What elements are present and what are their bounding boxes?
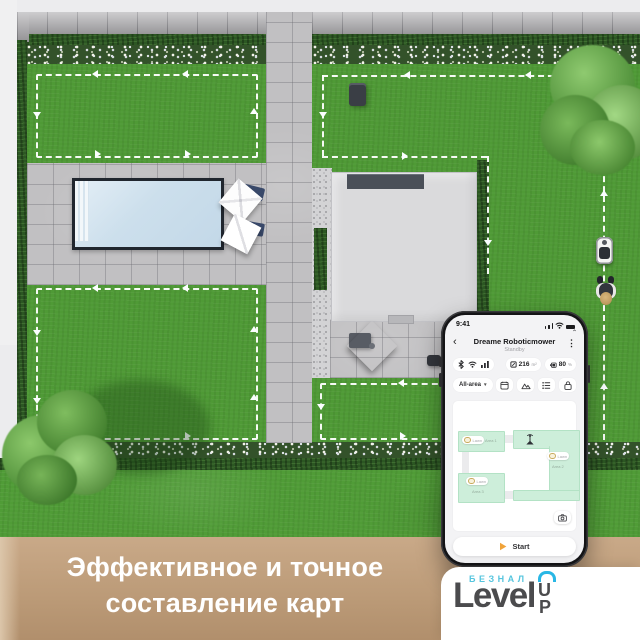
task-list-button[interactable]: [538, 378, 555, 392]
pool: [72, 178, 224, 250]
path-arrow: [404, 71, 410, 79]
mow-zone-boundary-house-edge: [487, 156, 489, 274]
bush-strip: [314, 228, 327, 290]
mowed-area-unit: m²: [532, 362, 537, 367]
tree: [2, 385, 127, 510]
path-arrow: [484, 240, 492, 246]
garden-wall-top: [17, 12, 266, 36]
chevron-down-icon: ▾: [484, 382, 487, 388]
app-screen: 9:41 ⌃ ‹ Dreame Roboticmower Standby ⋮: [445, 315, 584, 563]
status-bar-icons: [545, 322, 576, 329]
wifi-icon: [468, 361, 477, 368]
path-arrow: [185, 150, 191, 158]
path-arrow: [398, 379, 404, 387]
lock-icon: [564, 381, 572, 390]
chevron-up-icon[interactable]: ⌃: [572, 329, 577, 336]
device-status: Standby: [445, 347, 584, 353]
mow-zone-boundary-top-left: [36, 74, 258, 158]
toolbar: [496, 378, 576, 392]
tree: [540, 45, 640, 180]
zone-dot-icon: [468, 478, 475, 485]
person-head: [600, 292, 612, 305]
mower-front-band: [599, 247, 610, 259]
mow-zones-icon: [521, 381, 531, 390]
path-arrow: [92, 284, 98, 292]
phone-side-button: [439, 357, 442, 367]
mowed-area-chip[interactable]: 216 m²: [506, 358, 541, 371]
lawn-map[interactable]: Lawn Area 1 Lawn Area 2 Lawn Area 3: [452, 400, 577, 532]
lock-button[interactable]: [559, 378, 576, 392]
zone-badge-label: Lawn: [477, 479, 487, 484]
play-icon: [499, 542, 507, 551]
path-arrow: [182, 70, 188, 78]
garden-wall-top: [312, 12, 640, 36]
path-arrow: [402, 152, 408, 160]
zone-badge[interactable]: Lawn: [466, 477, 488, 485]
remap-camera-button[interactable]: [554, 511, 571, 524]
mow-zone-boundary-bottom-right: [320, 383, 448, 440]
wifi-icon: [555, 322, 564, 329]
zone-label: Area 3: [472, 489, 484, 494]
house-entry-step: [388, 315, 414, 324]
signal-bars-icon: [481, 361, 489, 368]
mowed-area-value: 216: [519, 361, 530, 368]
status-bar-time: 9:41: [456, 321, 470, 328]
path-arrow: [525, 71, 531, 79]
path-arrow: [33, 330, 41, 336]
cell-signal-icon: [545, 326, 547, 329]
banner-caption-line1: Эффективное и точное: [15, 549, 435, 585]
brand-logo-card: БЕЗНАЛ Level U P: [441, 567, 640, 640]
path-arrow: [400, 432, 406, 440]
connectivity-pill[interactable]: [453, 358, 494, 371]
trash-bin: [349, 83, 366, 106]
area-selector-label: All-area: [459, 382, 481, 388]
path-arrow: [319, 112, 327, 118]
map-corridor: [462, 449, 469, 474]
battery-chip[interactable]: 80 %: [545, 358, 576, 371]
base-station-icon: [525, 433, 535, 445]
start-button[interactable]: Start: [453, 537, 576, 556]
schedule-icon: [500, 381, 509, 390]
logo-wordmark: Level: [453, 576, 535, 616]
path-arrow: [600, 383, 608, 389]
battery-value: 80: [559, 361, 566, 368]
zone-badge-label: Lawn: [473, 438, 483, 443]
logo-up-u: U: [538, 583, 551, 598]
person: [595, 276, 617, 310]
zone-badge[interactable]: Lawn: [547, 452, 569, 460]
battery-unit: %: [568, 362, 572, 367]
umbrella-pole: [368, 342, 376, 350]
phone-side-button: [439, 373, 442, 387]
start-button-label: Start: [512, 542, 529, 551]
cell-signal-icon: [552, 323, 554, 329]
more-menu-button[interactable]: ⋮: [567, 338, 576, 349]
path-arrow: [92, 70, 98, 78]
flower-bed-top: [26, 45, 266, 64]
left-margin: [0, 0, 17, 345]
pool-steps: [75, 181, 89, 241]
garden-wall-left: [17, 12, 29, 42]
area-icon: [510, 361, 517, 368]
schedule-button[interactable]: [496, 378, 513, 392]
robot-mower: [596, 237, 613, 264]
zone-dot-icon: [549, 453, 556, 460]
zone-badge[interactable]: Lawn: [462, 436, 484, 444]
remap-camera-icon: [558, 514, 567, 522]
mow-zones-button[interactable]: [517, 378, 534, 392]
path-arrow: [182, 284, 188, 292]
task-list-icon: [542, 381, 551, 390]
banner-caption: Эффективное и точное составление карт: [15, 549, 435, 621]
mower-sensor: [602, 240, 607, 245]
area-selector-dropdown[interactable]: All-area ▾: [453, 378, 493, 392]
logo-up-p: P: [539, 600, 551, 615]
house-roof-dark-section: [347, 174, 424, 189]
zone-dot-icon: [464, 437, 471, 444]
zone-label: Area 2: [552, 464, 564, 469]
phone-mockup: 9:41 ⌃ ‹ Dreame Roboticmower Standby ⋮: [441, 311, 588, 567]
page-title: Dreame Roboticmower: [445, 337, 584, 346]
path-arrow: [317, 404, 325, 410]
path-arrow: [33, 112, 41, 118]
path-arrow: [600, 190, 608, 196]
promo-image: Эффективное и точное составление карт 9:…: [0, 0, 640, 640]
path-arrow: [250, 108, 258, 114]
map-zone-2-bottom[interactable]: [513, 490, 580, 501]
zone-label: Area 1: [485, 438, 497, 443]
zone-badge-label: Lawn: [558, 454, 568, 459]
device-metrics: 216 m² 80 %: [506, 358, 576, 371]
paving-center-path: [266, 12, 312, 443]
battery-icon: [549, 362, 557, 368]
path-arrow: [95, 150, 101, 158]
phone-side-button: [588, 365, 591, 383]
banner-caption-line2: составление карт: [15, 585, 435, 621]
bluetooth-icon: [458, 360, 464, 369]
path-arrow: [250, 326, 258, 332]
house-roof: [331, 172, 477, 322]
path-arrow: [250, 394, 258, 400]
cell-signal-icon: [548, 325, 550, 330]
